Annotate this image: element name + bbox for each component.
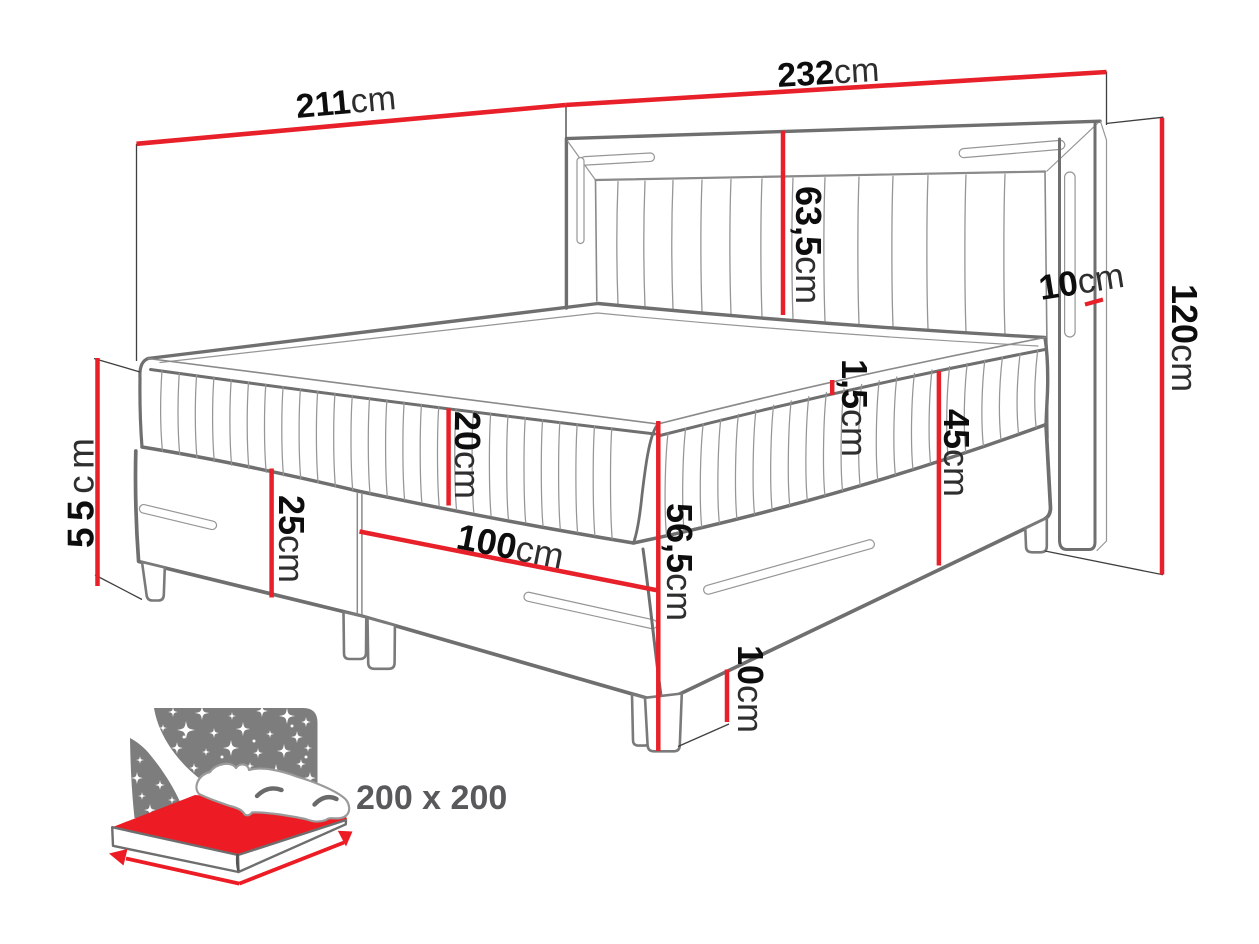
svg-text:200 x 200: 200 x 200 <box>356 779 507 817</box>
svg-text:1,5cm: 1,5cm <box>834 359 875 457</box>
svg-text:25cm: 25cm <box>271 495 312 583</box>
svg-text:55cm: 55cm <box>61 432 102 548</box>
svg-text:10cm: 10cm <box>730 645 771 733</box>
svg-text:20cm: 20cm <box>447 411 488 499</box>
svg-text:232cm: 232cm <box>776 51 880 95</box>
svg-text:45cm: 45cm <box>936 409 977 497</box>
svg-text:120cm: 120cm <box>1164 284 1205 392</box>
svg-text:56,5cm: 56,5cm <box>659 503 700 621</box>
svg-text:63,5cm: 63,5cm <box>788 186 829 304</box>
